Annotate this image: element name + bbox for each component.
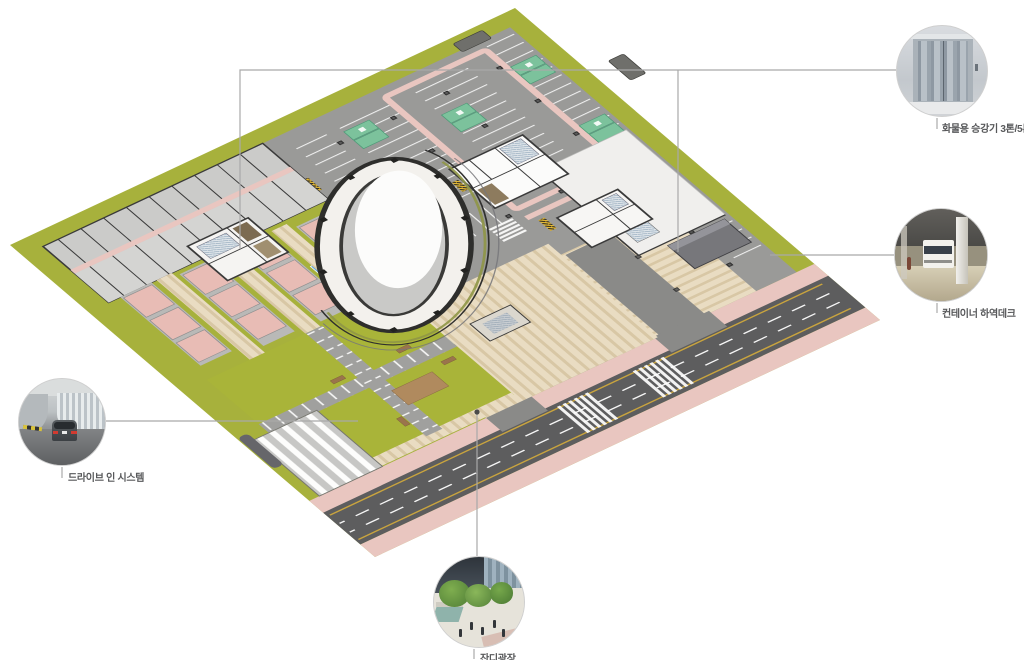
dock-floor [895,266,987,301]
car-taillight [53,431,58,434]
label-freight-elevator: 화물용 승강기 3톤/5톤 [942,120,1024,135]
plaza-pond [433,607,463,622]
truck-cab [923,240,954,268]
pedestrian-figure [493,620,496,628]
lawn-plaza-photo [433,556,525,648]
car-rear-window [54,422,75,429]
car-taillight [71,431,76,434]
elevator-door-seam [943,41,945,101]
label-container-deck: 컨테이너 하역데크 [942,305,1016,320]
drive-in-car-photo [18,378,106,466]
pedestrian-figure [470,622,473,630]
label-drive-in: 드라이브 인 시스템 [68,469,144,484]
freight-elevator-photo [896,25,988,117]
pedestrian-figure [459,629,462,637]
pedestrian-figure [481,627,484,635]
elevator-floor [905,102,981,114]
car-license-plate [62,431,67,434]
plaza-tree [465,584,492,607]
truck-grille [924,260,952,264]
pedestrian-figure [502,629,505,637]
container-truck-photo [894,208,988,302]
dock-pillar [901,226,907,279]
elevator-call-button [975,64,978,71]
plaza-tree [490,582,513,604]
worker-figure [907,257,911,270]
dock-pillar [956,217,968,283]
label-lawn-plaza: 잔디광장 [480,650,516,660]
truck-windshield [924,246,952,254]
elevator-lintel [911,34,975,39]
leader-dot [474,409,479,414]
floor-plan [10,0,915,557]
infographic-canvas: 화물용 승강기 3톤/5톤 컨테이너 하역데크 드라이브 인 시스템 잔디광장 [0,0,1024,660]
